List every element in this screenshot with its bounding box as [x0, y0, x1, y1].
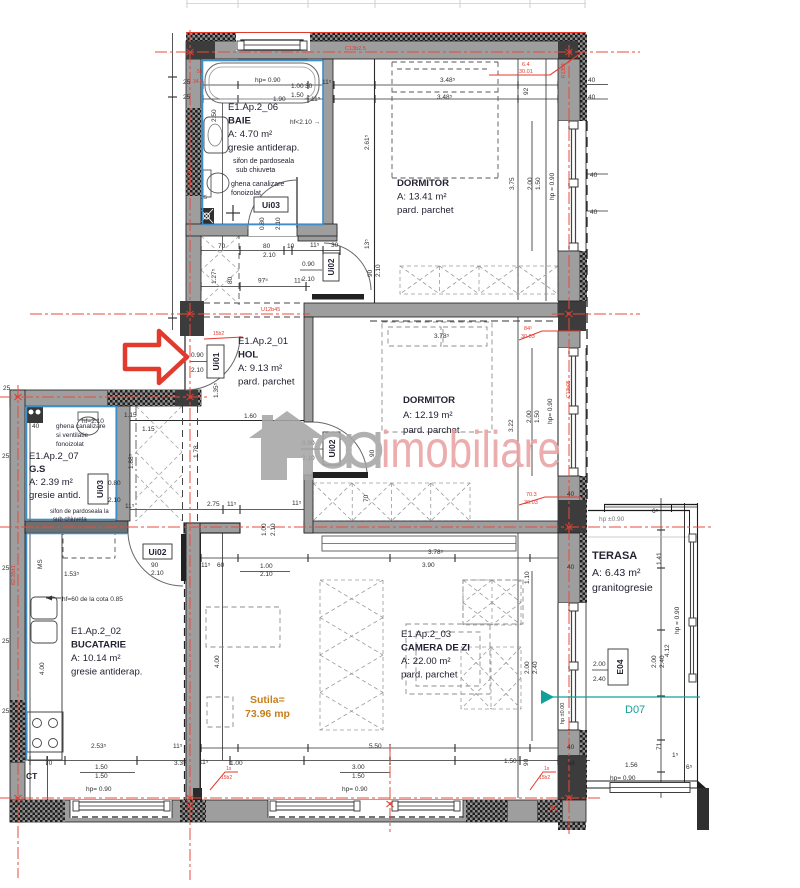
- svg-text:40: 40: [590, 172, 598, 179]
- svg-text:1.50: 1.50: [291, 92, 304, 99]
- svg-text:90: 90: [369, 449, 376, 457]
- svg-text:6⁵: 6⁵: [686, 764, 693, 771]
- svg-text:Ui02: Ui02: [327, 439, 337, 457]
- svg-text:30.03: 30.03: [524, 500, 538, 506]
- svg-text:CAMERA DE ZI: CAMERA DE ZI: [401, 643, 470, 654]
- svg-text:gresie antiderap.: gresie antiderap.: [71, 667, 142, 678]
- svg-text:E1.Ap.2_01: E1.Ap.2_01: [238, 336, 288, 347]
- svg-text:71: 71: [656, 742, 663, 750]
- svg-text:R13b4: R13b4: [561, 63, 567, 78]
- svg-text:Ui02: Ui02: [149, 547, 167, 557]
- svg-text:1.56: 1.56: [625, 762, 638, 769]
- svg-text:Sutila=: Sutila=: [250, 694, 285, 706]
- svg-text:40: 40: [567, 564, 575, 571]
- svg-text:11⁵: 11⁵: [310, 242, 320, 249]
- svg-text:40: 40: [32, 423, 40, 430]
- svg-text:30.01: 30.01: [519, 69, 533, 75]
- svg-text:E1.Ap.2_03: E1.Ap.2_03: [401, 629, 451, 640]
- svg-text:3.48⁵: 3.48⁵: [440, 77, 456, 84]
- svg-text:80: 80: [263, 243, 271, 250]
- svg-text:HOL: HOL: [238, 350, 258, 361]
- svg-text:2.00: 2.00: [593, 661, 606, 668]
- svg-text:2.10: 2.10: [260, 571, 273, 578]
- svg-text:pard. parchet: pard. parchet: [401, 670, 458, 681]
- svg-text:30: 30: [331, 242, 339, 249]
- svg-text:15b2: 15b2: [539, 775, 550, 781]
- svg-text:E1.Ap.2_06: E1.Ap.2_06: [228, 102, 278, 113]
- svg-text:3.78⁵: 3.78⁵: [434, 333, 450, 340]
- svg-text:hf=2.10: hf=2.10: [82, 418, 104, 425]
- svg-text:11⁵: 11⁵: [294, 278, 304, 285]
- svg-text:3.3⁵: 3.3⁵: [174, 760, 186, 767]
- svg-text:A: 10.14 m²: A: 10.14 m²: [71, 653, 121, 664]
- svg-text:gresie antid.: gresie antid.: [29, 490, 81, 501]
- svg-text:fonoizolat: fonoizolat: [56, 441, 84, 448]
- svg-text:D07: D07: [625, 704, 645, 716]
- svg-text:6⁵: 6⁵: [652, 508, 659, 515]
- svg-text:A: 6.43 m²: A: 6.43 m²: [592, 567, 641, 579]
- svg-text:1.35⁵: 1.35⁵: [213, 382, 220, 398]
- svg-text:3.75: 3.75: [509, 177, 516, 190]
- svg-text:1.60: 1.60: [244, 413, 257, 420]
- svg-text:40: 40: [588, 94, 596, 101]
- svg-text:fonoizolat: fonoizolat: [231, 190, 261, 197]
- svg-text:2.10: 2.10: [151, 570, 164, 577]
- svg-text:2.10: 2.10: [375, 264, 382, 277]
- svg-text:2.10: 2.10: [275, 217, 282, 230]
- svg-text:80: 80: [227, 276, 234, 284]
- svg-text:40: 40: [567, 491, 575, 498]
- svg-text:2.10: 2.10: [108, 497, 121, 504]
- svg-text:sifon de pardoseala la: sifon de pardoseala la: [50, 509, 109, 515]
- svg-text:A: 2.39 m²: A: 2.39 m²: [29, 477, 73, 488]
- svg-text:1.41: 1.41: [656, 552, 663, 565]
- svg-text:2.53⁵: 2.53⁵: [91, 743, 107, 750]
- svg-text:1.27⁵: 1.27⁵: [211, 268, 218, 284]
- svg-text:si ventilatie: si ventilatie: [56, 432, 89, 439]
- svg-text:sub chiuveta: sub chiuveta: [53, 517, 87, 523]
- svg-text:1.50: 1.50: [95, 764, 108, 771]
- svg-text:10: 10: [287, 243, 295, 250]
- svg-text:40: 40: [567, 744, 575, 751]
- svg-text:1.50: 1.50: [504, 758, 517, 765]
- svg-text:ghena canalizare: ghena canalizare: [231, 181, 284, 188]
- svg-text:Ui03: Ui03: [262, 200, 280, 210]
- svg-text:40: 40: [590, 209, 598, 216]
- svg-text:15b2: 15b2: [213, 331, 224, 337]
- svg-text:25: 25: [3, 385, 11, 392]
- svg-text:0.90: 0.90: [191, 352, 204, 359]
- svg-text:15b2: 15b2: [221, 775, 232, 781]
- svg-text:11⁵: 11⁵: [292, 500, 302, 507]
- svg-text:C13b2.5: C13b2.5: [345, 46, 366, 52]
- svg-text:E1.Ap.2_02: E1.Ap.2_02: [71, 626, 121, 637]
- svg-text:25: 25: [2, 708, 10, 715]
- svg-text:30.03: 30.03: [521, 334, 535, 340]
- svg-text:hf<2.10 →: hf<2.10 →: [290, 119, 320, 126]
- svg-text:2.10: 2.10: [263, 252, 276, 259]
- svg-text:granitogresie: granitogresie: [592, 582, 653, 594]
- svg-text:62.35±1: 62.35±1: [11, 565, 17, 585]
- svg-text:60: 60: [217, 562, 225, 569]
- svg-text:A: 22.00 m²: A: 22.00 m²: [401, 656, 451, 667]
- svg-text:1.00: 1.00: [230, 760, 243, 767]
- svg-text:hp= 0.90: hp= 0.90: [86, 786, 112, 793]
- svg-text:2.10: 2.10: [191, 367, 204, 374]
- svg-text:1.00: 1.00: [261, 523, 268, 536]
- svg-text:hf=60 de la cota 0.85: hf=60 de la cota 0.85: [62, 596, 123, 603]
- svg-text:MS: MS: [37, 559, 44, 569]
- svg-text:2.75: 2.75: [207, 501, 220, 508]
- svg-text:Ui01: Ui01: [211, 352, 221, 370]
- svg-text:92: 92: [523, 87, 530, 95]
- svg-text:6.4: 6.4: [522, 62, 530, 68]
- svg-text:1s: 1s: [544, 766, 550, 772]
- svg-text:Ui02: Ui02: [327, 258, 336, 275]
- svg-text:11⁵: 11⁵: [227, 501, 237, 508]
- svg-text:3.00: 3.00: [352, 764, 365, 771]
- svg-text:11⁵: 11⁵: [173, 743, 183, 750]
- svg-text:70: 70: [218, 243, 226, 250]
- svg-text:11⁵: 11⁵: [201, 562, 211, 569]
- svg-text:1.50: 1.50: [535, 177, 542, 190]
- svg-text:34.8: 34.8: [193, 79, 203, 85]
- svg-text:2.00: 2.00: [527, 177, 534, 190]
- svg-text:gresie antiderap.: gresie antiderap.: [228, 143, 299, 154]
- svg-text:70.3: 70.3: [526, 492, 537, 498]
- svg-text:55: 55: [197, 69, 203, 75]
- svg-text:25: 25: [2, 565, 10, 572]
- svg-text:5.50: 5.50: [369, 743, 382, 750]
- svg-text:G.S: G.S: [29, 464, 45, 475]
- svg-text:30: 30: [305, 83, 313, 90]
- svg-text:hp ±0.90: hp ±0.90: [599, 516, 625, 523]
- svg-text:0.90: 0.90: [302, 261, 315, 268]
- svg-text:A: 4.70 m²: A: 4.70 m²: [228, 129, 273, 140]
- svg-text:3.48⁵: 3.48⁵: [437, 94, 453, 101]
- svg-text:imobiliare: imobiliare: [381, 421, 561, 479]
- svg-text:A: 13.41 m²: A: 13.41 m²: [397, 192, 447, 203]
- svg-text:13⁵: 13⁵: [364, 239, 371, 249]
- svg-text:2.00: 2.00: [651, 655, 658, 668]
- svg-text:hp ±0.00: hp ±0.00: [560, 703, 566, 724]
- svg-text:40: 40: [588, 77, 596, 84]
- svg-text:BUCATARIE: BUCATARIE: [71, 640, 127, 651]
- svg-text:2.40: 2.40: [532, 661, 539, 674]
- svg-text:2.50: 2.50: [211, 109, 218, 122]
- svg-text:1.00: 1.00: [260, 563, 273, 570]
- svg-text:70: 70: [363, 494, 370, 502]
- svg-text:0.80: 0.80: [259, 217, 266, 230]
- svg-text:11⁵: 11⁵: [311, 96, 321, 103]
- svg-text:2.10: 2.10: [302, 276, 315, 283]
- svg-text:pard. parchet: pard. parchet: [397, 205, 454, 216]
- svg-text:1⁵: 1⁵: [672, 752, 679, 759]
- svg-text:4.00: 4.00: [214, 655, 221, 668]
- svg-text:2.61⁵: 2.61⁵: [364, 134, 371, 150]
- svg-text:1.15: 1.15: [142, 426, 155, 433]
- svg-text:3.78⁵: 3.78⁵: [428, 549, 444, 556]
- svg-text:84⁵: 84⁵: [524, 325, 532, 332]
- svg-text:11⁵: 11⁵: [199, 759, 209, 766]
- svg-text:25: 25: [183, 79, 191, 86]
- svg-text:sifon de pardoseala: sifon de pardoseala: [233, 158, 294, 165]
- svg-text:1.50: 1.50: [352, 773, 365, 780]
- svg-text:25: 25: [183, 94, 191, 101]
- svg-text:2.40: 2.40: [659, 655, 666, 668]
- svg-text:1.88⁵: 1.88⁵: [128, 453, 135, 469]
- svg-text:42.35±1: 42.35±1: [187, 167, 193, 187]
- svg-text:2.10: 2.10: [270, 523, 277, 536]
- svg-text:A: 12.19 m²: A: 12.19 m²: [403, 410, 453, 421]
- svg-text:2.00: 2.00: [524, 661, 531, 674]
- svg-text:1.00: 1.00: [291, 83, 304, 90]
- svg-text:hp = 0.90: hp = 0.90: [674, 606, 681, 634]
- svg-text:hp= 0.90: hp= 0.90: [255, 77, 281, 84]
- svg-text:Ui03: Ui03: [95, 480, 105, 498]
- svg-text:sub chiuveta: sub chiuveta: [236, 167, 275, 174]
- svg-text:C13b05: C13b05: [566, 380, 572, 398]
- svg-text:TERASA: TERASA: [592, 550, 637, 562]
- svg-text:DORMITOR: DORMITOR: [397, 178, 449, 189]
- svg-text:90: 90: [367, 269, 374, 277]
- svg-text:11⁵: 11⁵: [322, 79, 332, 86]
- svg-text:E04: E04: [615, 659, 625, 674]
- svg-text:4.12: 4.12: [664, 644, 671, 657]
- svg-text:11⁵: 11⁵: [125, 503, 135, 510]
- svg-text:90: 90: [523, 758, 530, 766]
- svg-text:40: 40: [567, 761, 575, 768]
- svg-text:70: 70: [45, 760, 53, 767]
- svg-text:1.15: 1.15: [124, 412, 137, 419]
- svg-text:73.96 mp: 73.96 mp: [245, 708, 290, 720]
- svg-text:DORMITOR: DORMITOR: [403, 395, 455, 406]
- svg-text:25: 25: [2, 638, 10, 645]
- svg-text:1.50: 1.50: [95, 773, 108, 780]
- svg-text:hp= 0.90: hp= 0.90: [610, 775, 636, 782]
- svg-text:90: 90: [151, 562, 159, 569]
- svg-text:2.40: 2.40: [593, 676, 606, 683]
- svg-text:U12b45: U12b45: [261, 307, 280, 313]
- svg-text:BAIE: BAIE: [228, 116, 252, 127]
- svg-text:97⁵: 97⁵: [258, 278, 268, 285]
- svg-text:0.80: 0.80: [108, 480, 121, 487]
- svg-text:CT: CT: [26, 771, 38, 781]
- svg-text:hp = 0.90: hp = 0.90: [549, 172, 556, 200]
- svg-text:4.00: 4.00: [39, 662, 46, 675]
- svg-text:1.78: 1.78: [193, 445, 200, 458]
- svg-text:A: 9.13 m²: A: 9.13 m²: [238, 363, 283, 374]
- svg-text:25: 25: [2, 453, 10, 460]
- svg-text:1.90: 1.90: [273, 96, 286, 103]
- svg-text:1.10: 1.10: [524, 571, 531, 584]
- svg-text:pard. parchet: pard. parchet: [238, 377, 295, 388]
- svg-text:E1.Ap.2_07: E1.Ap.2_07: [29, 451, 79, 462]
- svg-text:hp= 0.90: hp= 0.90: [342, 786, 368, 793]
- svg-text:3.90: 3.90: [422, 562, 435, 569]
- svg-text:1.53⁵: 1.53⁵: [64, 571, 80, 578]
